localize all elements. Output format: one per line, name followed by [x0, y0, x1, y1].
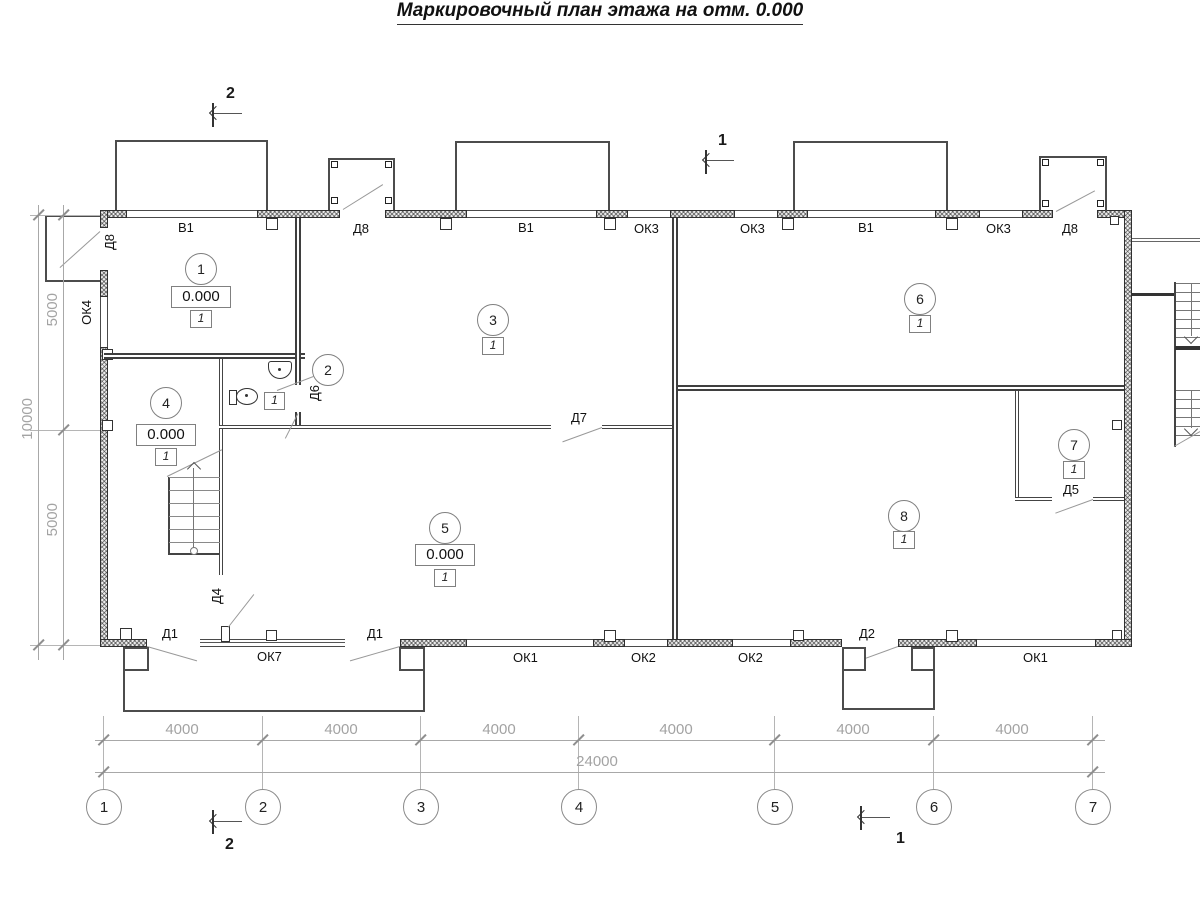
exterior-landing-edge [1132, 238, 1200, 242]
bay-dimension: 4000 [469, 722, 529, 737]
room-number: 8 [900, 508, 908, 524]
porch-step [123, 647, 149, 671]
door-leaf-d4 [228, 594, 255, 628]
porch-step [842, 647, 866, 671]
room-type-box: 1 [893, 531, 915, 549]
room-number: 1 [197, 261, 205, 277]
door-leaf-d5 [1055, 499, 1093, 514]
partition-mid [219, 425, 551, 429]
column-mark [266, 630, 277, 641]
axis-bubble: 6 [916, 789, 952, 825]
room-number-circle: 2 [312, 354, 344, 386]
door-mark-d8: Д8 [353, 222, 369, 236]
total-dimension-left: 10000 [19, 398, 36, 440]
wall-segment [596, 210, 628, 218]
axis-line [420, 716, 421, 789]
axis-line [103, 716, 104, 789]
section-label: 1 [896, 830, 905, 848]
partition-mid [602, 425, 673, 429]
elevation-mark: 0.000 [171, 286, 231, 308]
porch-post [1042, 159, 1049, 166]
room-type-box: 1 [190, 310, 212, 328]
column-mark [1110, 216, 1119, 225]
window-mark-ok3: ОК3 [740, 222, 765, 236]
room-number-circle: 7 [1058, 429, 1090, 461]
axis-number: 4 [575, 799, 583, 816]
section-label: 2 [226, 85, 235, 103]
column-mark [120, 628, 132, 640]
room-number: 6 [916, 291, 924, 307]
wall-segment [257, 210, 340, 218]
door-mark-d6: Д6 [308, 385, 322, 401]
section-label: 1 [718, 132, 727, 150]
room-number-circle: 6 [904, 283, 936, 315]
total-dimension: 24000 [557, 754, 637, 769]
axis-number: 2 [259, 799, 267, 816]
axis-line [1092, 716, 1093, 789]
door-leaf-d7 [562, 427, 602, 442]
axis-number: 7 [1089, 799, 1097, 816]
bay-dimension: 4000 [311, 722, 371, 737]
axis-bubble: 4 [561, 789, 597, 825]
partition-room7 [1015, 391, 1019, 497]
column-mark [604, 630, 616, 642]
room-number: 4 [162, 395, 170, 411]
door-mark-d2: Д2 [859, 627, 875, 641]
elevation-mark: 0.000 [415, 544, 475, 566]
window-ok2-1 [625, 639, 667, 647]
extension-line [30, 215, 100, 216]
column-mark [266, 218, 278, 230]
exterior-landing [1132, 293, 1174, 296]
cross-wall [672, 218, 678, 639]
dimension-line-total [95, 772, 1105, 773]
bay-dimension: 4000 [823, 722, 883, 737]
partition-room7 [1093, 497, 1124, 501]
door-mark-d7: Д7 [571, 411, 587, 425]
room-type-box: 1 [909, 315, 931, 333]
column-mark [102, 420, 113, 431]
stair-arrow-stem [193, 468, 194, 550]
partition-room7 [1015, 497, 1052, 501]
floor-plan-drawing: Маркировочный план этажа на отм. 0.000 В… [0, 0, 1200, 900]
bay-dimension: 4000 [646, 722, 706, 737]
window-v1-1 [127, 210, 257, 218]
wall-segment [100, 270, 108, 297]
porch-step [911, 647, 935, 671]
column-mark [793, 630, 804, 641]
wall-segment [1124, 210, 1132, 645]
axis-number: 6 [930, 799, 938, 816]
room-number: 3 [489, 312, 497, 328]
column-mark [782, 218, 794, 230]
window-mark-ok4: ОК4 [80, 300, 94, 325]
room-number-circle: 4 [150, 387, 182, 419]
door-mark-d1: Д1 [367, 627, 383, 641]
axis-number: 1 [100, 799, 108, 816]
door-mark-d4: Д4 [210, 588, 224, 604]
elevation-mark: 0.000 [136, 424, 196, 446]
room-type-box: 1 [482, 337, 504, 355]
stair-arrow-origin [190, 547, 198, 555]
axis-line [262, 716, 263, 789]
porch-post [1042, 200, 1049, 207]
room-type-box: 1 [264, 392, 285, 410]
dimension-line [95, 740, 1105, 741]
interior-wall [104, 353, 305, 359]
entrance-porch [45, 215, 100, 282]
column-mark [604, 218, 616, 230]
room-number: 2 [324, 362, 332, 378]
axis-line [774, 716, 775, 789]
room-type-box: 1 [434, 569, 456, 587]
door-mark-d8: Д8 [103, 234, 117, 250]
sink-drain [278, 368, 281, 371]
window-mark-ok1: ОК1 [513, 651, 538, 665]
window-ok3-3 [980, 210, 1022, 218]
room-number: 7 [1070, 437, 1078, 453]
axis-number: 3 [417, 799, 425, 816]
axis-bubble: 7 [1075, 789, 1111, 825]
window-ok1-1 [467, 639, 593, 647]
stair-flight [169, 477, 220, 554]
axis-bubble: 2 [245, 789, 281, 825]
wall-segment [100, 639, 147, 647]
room-number: 5 [441, 520, 449, 536]
wall-segment [667, 639, 733, 647]
exterior-stair-landing [1175, 346, 1200, 350]
window-ok1-2 [977, 639, 1095, 647]
window-ok4 [100, 297, 108, 347]
window-mark-ok2: ОК2 [738, 651, 763, 665]
dimension-line-total [38, 205, 39, 660]
porch-post [385, 161, 392, 168]
axis-bubble: 1 [86, 789, 122, 825]
column-mark [1112, 420, 1122, 430]
wall-segment [1095, 639, 1132, 647]
window-mark-v1: В1 [858, 221, 874, 235]
porch-post [1097, 159, 1104, 166]
window-v1-2 [467, 210, 596, 218]
window-mark-v1: В1 [178, 221, 194, 235]
stair-arrow-stem [1191, 284, 1192, 336]
porch-step [399, 647, 425, 671]
room-number-circle: 3 [477, 304, 509, 336]
porch-post [385, 197, 392, 204]
axis-bubble: 3 [403, 789, 439, 825]
room-number-circle: 1 [185, 253, 217, 285]
wall-segment [385, 210, 467, 218]
window-mark-ok1: ОК1 [1023, 651, 1048, 665]
dimension-line [63, 205, 64, 660]
door-post-d4 [221, 626, 230, 642]
bay-dimension-left: 5000 [44, 503, 61, 536]
wall-segment [935, 210, 980, 218]
window-v1-3 [808, 210, 935, 218]
wall-segment [400, 639, 467, 647]
room-type-box: 1 [1063, 461, 1085, 479]
window-mark-v1: В1 [518, 221, 534, 235]
canopy [793, 141, 948, 210]
window-ok3-2 [735, 210, 777, 218]
window-mark-ok3: ОК3 [986, 222, 1011, 236]
window-ok2-2 [733, 639, 790, 647]
axis-line [933, 716, 934, 789]
extension-line [30, 645, 100, 646]
door-mark-d5: Д5 [1063, 483, 1079, 497]
porch-post [1097, 200, 1104, 207]
window-ok3-1 [628, 210, 670, 218]
canopy [455, 141, 610, 210]
door-mark-d1: Д1 [162, 627, 178, 641]
room-number-circle: 5 [429, 512, 461, 544]
extension-line [30, 430, 100, 431]
porch-post [331, 197, 338, 204]
wall-segment [777, 210, 808, 218]
window-mark-ok3: ОК3 [634, 222, 659, 236]
axis-number: 5 [771, 799, 779, 816]
canopy [115, 140, 268, 210]
wall-segment [100, 210, 108, 228]
wall-segment [670, 210, 735, 218]
entrance-porch [123, 647, 425, 712]
wall-segment [100, 347, 108, 645]
bay-dimension: 4000 [982, 722, 1042, 737]
toilet-drain [245, 394, 248, 397]
column-mark [946, 218, 958, 230]
interior-wall [295, 218, 301, 385]
section-label: 2 [225, 836, 234, 854]
bay-dimension: 4000 [152, 722, 212, 737]
window-mark-ok2: ОК2 [631, 651, 656, 665]
drawing-title: Маркировочный план этажа на отм. 0.000 [397, 0, 804, 25]
title-wrap: Маркировочный план этажа на отм. 0.000 [0, 0, 1200, 22]
door-mark-d8: Д8 [1062, 222, 1078, 236]
bay-dimension-left: 5000 [44, 293, 61, 326]
column-mark [440, 218, 452, 230]
axis-bubble: 5 [757, 789, 793, 825]
wall-segment [898, 639, 977, 647]
room-type-box: 1 [155, 448, 177, 466]
room-number-circle: 8 [888, 500, 920, 532]
column-mark [946, 630, 958, 642]
porch-post [331, 161, 338, 168]
column-mark [1112, 630, 1122, 640]
interior-wall [678, 385, 1124, 391]
